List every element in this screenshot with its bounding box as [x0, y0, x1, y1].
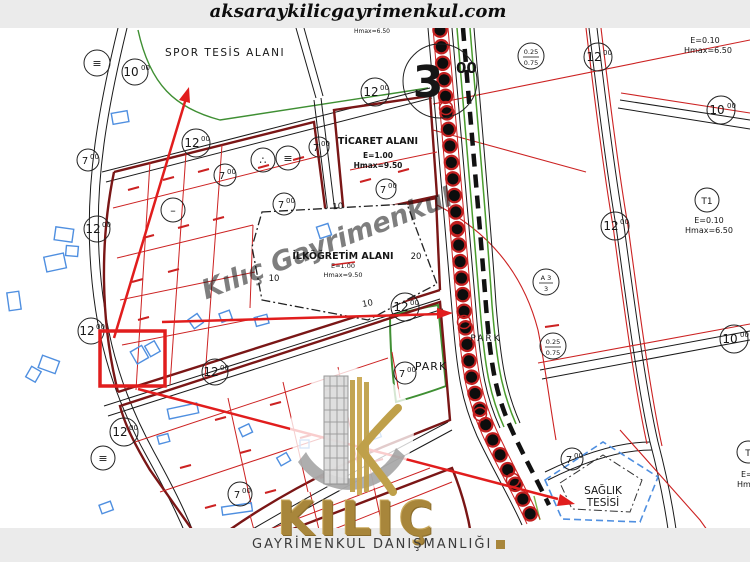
arrow-line-right	[162, 314, 440, 322]
zoning-map: SPOR TESİS ALANI TİCARET ALANI E=1.00 Hm…	[0, 0, 750, 562]
ticaret-label: TİCARET ALANI	[338, 136, 418, 147]
dim-10-top: 10	[332, 202, 343, 213]
road-width-label: 7	[313, 143, 319, 154]
brand-tagline: GAYRİMENKUL DANIŞMANLIĞI	[252, 537, 472, 552]
t1-hmax: Hmax=6.50	[685, 226, 733, 235]
road-width-label: 12	[363, 85, 378, 99]
road-width-sup: 00	[603, 49, 612, 57]
road-width-sup: 00	[286, 197, 295, 205]
road-width-sup: 00	[388, 182, 397, 190]
arrowhead-up	[179, 87, 190, 103]
road-width-sup: 00	[407, 366, 416, 374]
saglik-label-2: TESİSİ	[586, 496, 620, 509]
building-order-floors: 3	[544, 285, 548, 293]
t1-partial-code: T	[744, 449, 750, 459]
website-url: aksaraykilicgayrimenkul.com	[0, 1, 716, 22]
road-width-label: 7	[234, 490, 240, 501]
symbol-label: ≡	[92, 57, 101, 70]
taks-value: 0.25	[524, 48, 538, 56]
road-width-sup: 00	[410, 299, 419, 307]
park-strip-label: PARK	[470, 334, 501, 344]
park-main-label: PARK	[415, 360, 447, 373]
junction-sup: 00	[456, 59, 477, 77]
kaks-value: 0.75	[524, 59, 538, 67]
road-width-label: 7	[399, 369, 405, 380]
t1-partial-hmax: Hma	[737, 480, 750, 489]
road-width-sup: 00	[727, 102, 736, 110]
block-outlines	[104, 96, 474, 560]
symbol-label: ≡	[283, 152, 292, 165]
emblem-watermark	[290, 368, 414, 495]
road-width-sup: 00	[129, 424, 138, 432]
symbol-label: ∴	[260, 154, 267, 167]
arrowhead-right	[437, 308, 453, 319]
listing-image: aksaraykilicgayrimenkul.com	[0, 0, 750, 562]
road-width-label: 7	[219, 171, 225, 182]
road-width-label: 7	[380, 185, 386, 196]
road-width-label: 12	[184, 136, 199, 150]
highlight-rectangle	[100, 331, 165, 386]
road-width-sup: 00	[242, 487, 251, 495]
road-width-sup: 00	[220, 364, 229, 372]
dim-10-bottom: 10	[361, 298, 373, 310]
road-width-sup: 00	[620, 218, 629, 226]
ticaret-e: E=1.00	[363, 151, 393, 160]
road-width-label: 12	[112, 425, 127, 439]
taks-value: 0.25	[546, 338, 560, 346]
road-width-label: 7	[82, 156, 88, 167]
kaks-value: 0.75	[546, 349, 560, 357]
road-width-label: 12	[203, 365, 218, 379]
road-width-label: 10	[722, 332, 737, 346]
ticaret-hmax: Hmax=9.50	[354, 161, 403, 170]
building-order-value: A 3	[541, 274, 552, 282]
boulevard	[428, 28, 549, 525]
density-circles: 0.25 0.75 0.25 0.75 A 3 3	[518, 43, 566, 359]
t1-e: E=0.10	[694, 216, 724, 225]
road-width-sup: 00	[141, 64, 150, 72]
road-width-sup: 00	[380, 84, 389, 92]
road-width-sup: 00	[740, 331, 749, 339]
symbol-label: –	[170, 204, 176, 217]
symbol-label: ≡	[98, 452, 107, 465]
dim-20-right: 20	[411, 252, 422, 262]
t1-code: T1	[700, 197, 712, 207]
road-width-sup: 00	[574, 452, 583, 460]
road-width-label: 12	[85, 222, 100, 236]
okul-hmax: Hmax=9.50	[324, 271, 363, 279]
t1-partial-e: E=	[741, 470, 750, 479]
road-width-sup: 00	[102, 221, 111, 229]
road-width-label: 10	[709, 103, 724, 117]
gold-square-icon	[496, 540, 505, 549]
road-width-sup: 00	[227, 168, 236, 176]
road-width-sup: 00	[321, 140, 330, 148]
zone-topright-hmax: Hmax=6.50	[684, 46, 732, 55]
road-width-label: 12	[79, 324, 94, 338]
zone-topright-e: E=0.10	[690, 36, 720, 45]
junction-main: 3	[413, 57, 444, 108]
road-width-sup: 00	[201, 135, 210, 143]
road-width-label: 7	[566, 455, 572, 466]
zone-top-partial-hmax: Hmax=6.50	[354, 28, 390, 35]
road-width-label: 12	[603, 219, 618, 233]
brand-tagline-text: GAYRİMENKUL DANIŞMANLIĞI	[252, 537, 492, 552]
road-width-label: 12	[586, 50, 601, 64]
road-width-label: 12	[393, 300, 408, 314]
road-width-sup: 00	[90, 153, 99, 161]
road-width-label: 7	[278, 200, 284, 211]
spor-label: SPOR TESİS ALANI	[165, 46, 285, 59]
saglik-label-1: SAĞLIK	[584, 484, 623, 497]
road-width-label: 10	[123, 65, 138, 79]
